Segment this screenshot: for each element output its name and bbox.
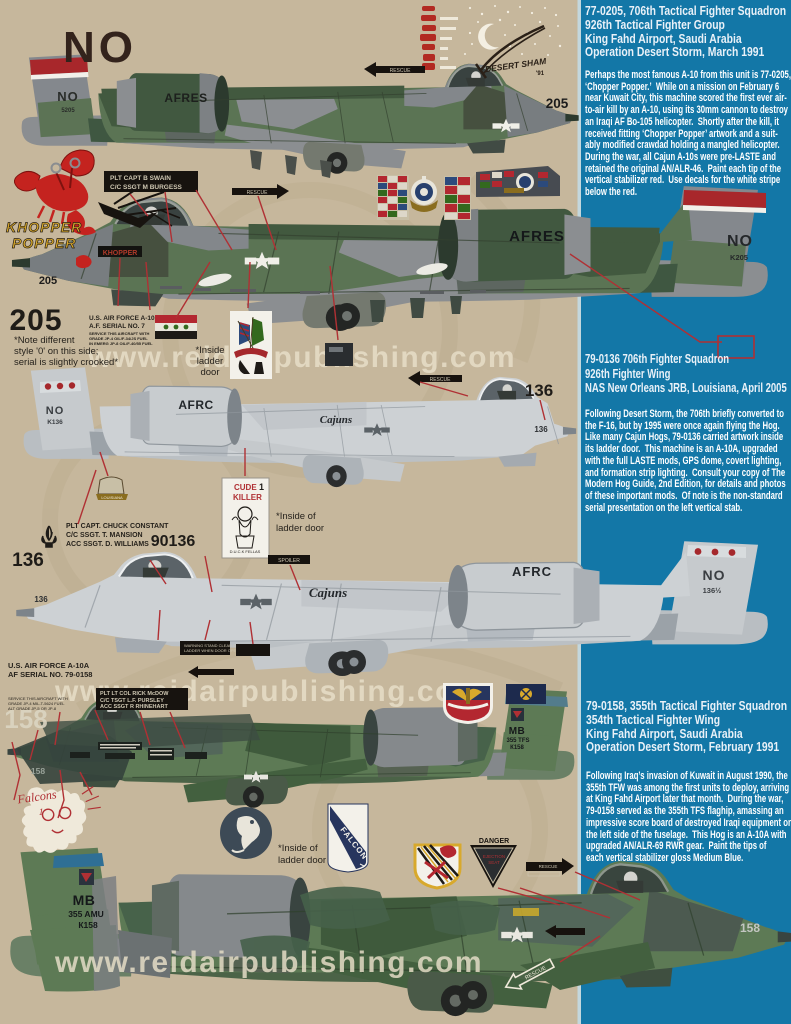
- svg-text:К158: К158: [78, 920, 98, 930]
- svg-text:158: 158: [31, 766, 45, 776]
- svg-text:158: 158: [4, 704, 47, 734]
- svg-text:205: 205: [546, 96, 569, 111]
- svg-text:NO: NO: [703, 567, 726, 583]
- svg-text:PLT CAPT B SWAIN: PLT CAPT B SWAIN: [110, 175, 171, 182]
- svg-text:U.S. AIR FORCE A-10A: U.S. AIR FORCE A-10A: [89, 315, 160, 322]
- svg-text:NO: NO: [46, 405, 65, 417]
- svg-text:*Inside: *Inside: [195, 345, 224, 356]
- svg-text:ladder: ladder: [197, 356, 223, 367]
- svg-text:NO: NO: [63, 23, 137, 72]
- svg-text:ACC SSGT. D. WILLIAMS: ACC SSGT. D. WILLIAMS: [66, 541, 149, 548]
- svg-text:EJECTION: EJECTION: [483, 854, 505, 859]
- svg-text:C/C SSGT. T. MANSION: C/C SSGT. T. MANSION: [66, 532, 143, 539]
- svg-text:К158: К158: [510, 745, 524, 751]
- svg-text:POPPER: POPPER: [12, 235, 76, 251]
- svg-text:www.reidairpublishing.com: www.reidairpublishing.com: [54, 946, 483, 979]
- svg-text:205: 205: [39, 275, 57, 287]
- svg-text:PLT CAPT. CHUCK CONSTANT: PLT CAPT. CHUCK CONSTANT: [66, 523, 169, 530]
- svg-text:136: 136: [34, 595, 48, 604]
- svg-text:NO: NO: [727, 233, 753, 250]
- svg-text:*Inside of: *Inside of: [276, 511, 316, 522]
- svg-text:AFRC: AFRC: [512, 564, 552, 579]
- svg-text:AF SERIAL NO. 79-0158: AF SERIAL NO. 79-0158: [8, 670, 92, 679]
- svg-text:MB: MB: [509, 726, 526, 737]
- svg-text:PLT LT COL RICK McDOW: PLT LT COL RICK McDOW: [100, 691, 169, 697]
- svg-text:IN EMERG JP-8 OIL/F-40/55 FUEL: IN EMERG JP-8 OIL/F-40/55 FUEL: [89, 341, 153, 346]
- svg-text:ladder door: ladder door: [278, 855, 326, 866]
- svg-text:style '0' on this side;: style '0' on this side;: [14, 346, 98, 357]
- svg-text:SPOILER: SPOILER: [278, 558, 300, 564]
- svg-text:LOUISIANA: LOUISIANA: [101, 495, 123, 500]
- svg-text:CUDE: CUDE: [234, 483, 257, 492]
- svg-text:SEAT: SEAT: [488, 860, 500, 865]
- svg-text:door: door: [200, 367, 219, 378]
- svg-text:Cajuns: Cajuns: [309, 585, 347, 600]
- svg-text:355 AMU: 355 AMU: [68, 909, 104, 919]
- svg-text:5205: 5205: [61, 108, 75, 114]
- svg-text:ACC SSGT R RHINEHART: ACC SSGT R RHINEHART: [100, 704, 168, 710]
- svg-text:MB: MB: [73, 892, 96, 908]
- svg-text:RESCUE: RESCUE: [430, 377, 452, 383]
- svg-text:AFRES: AFRES: [164, 91, 207, 105]
- svg-text:136½: 136½: [703, 586, 722, 595]
- svg-text:205: 205: [9, 304, 62, 337]
- svg-text:KHOPPER: KHOPPER: [6, 219, 82, 235]
- svg-text:serial is slightly crooked*: serial is slightly crooked*: [14, 357, 118, 368]
- svg-text:C/C SSGT M BURGESS: C/C SSGT M BURGESS: [110, 184, 183, 191]
- svg-text:U.S. AIR FORCE A-10A: U.S. AIR FORCE A-10A: [8, 661, 90, 670]
- svg-text:355 TFS: 355 TFS: [506, 738, 529, 744]
- svg-text:136: 136: [12, 550, 44, 571]
- svg-text:AFRES: AFRES: [509, 228, 565, 245]
- svg-text:*Note different: *Note different: [14, 335, 75, 346]
- svg-text:D.U.C.K FELLAS: D.U.C.K FELLAS: [230, 549, 261, 554]
- svg-text:RESCUE: RESCUE: [539, 864, 558, 869]
- svg-text:'91: '91: [536, 71, 545, 77]
- svg-text:136: 136: [525, 381, 553, 400]
- svg-text:K205: K205: [730, 253, 748, 262]
- svg-text:1: 1: [259, 482, 264, 492]
- svg-text:LADDER WHEN DOOR OPENS: LADDER WHEN DOOR OPENS: [184, 648, 242, 653]
- svg-text:158: 158: [740, 921, 760, 935]
- svg-text:DANGER: DANGER: [479, 838, 509, 845]
- svg-text:AFRC: AFRC: [178, 398, 213, 412]
- svg-text:RESCUE: RESCUE: [390, 68, 412, 74]
- svg-text:KHOPPER: KHOPPER: [103, 250, 138, 257]
- svg-text:1: 1: [39, 808, 44, 818]
- svg-text:KILLER: KILLER: [233, 493, 262, 502]
- svg-text:NO: NO: [57, 89, 79, 104]
- svg-text:A.F. SERIAL NO. 7: A.F. SERIAL NO. 7: [89, 323, 145, 330]
- svg-text:90136: 90136: [151, 533, 196, 550]
- svg-text:K136: K136: [47, 419, 63, 426]
- svg-text:ladder door: ladder door: [276, 523, 324, 534]
- svg-text:*Inside of: *Inside of: [278, 843, 318, 854]
- svg-text:RESCUE: RESCUE: [247, 190, 269, 196]
- svg-text:136: 136: [534, 425, 548, 434]
- svg-text:Cajuns: Cajuns: [320, 414, 352, 426]
